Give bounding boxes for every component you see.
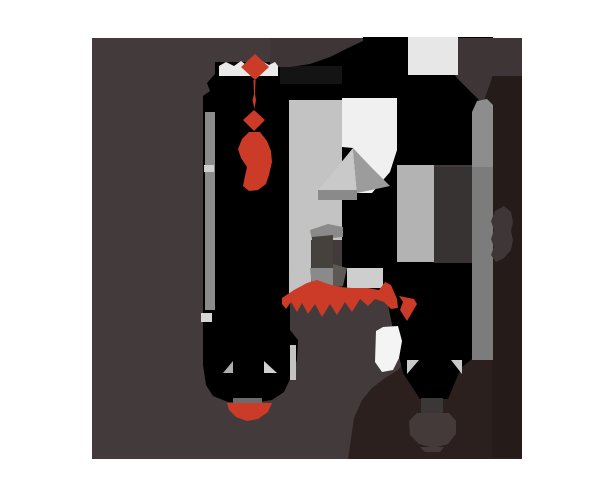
charcoal-rect	[421, 398, 443, 415]
medium-gray-column	[397, 165, 434, 262]
artwork-canvas	[0, 0, 614, 498]
artwork	[0, 0, 614, 498]
dark-gray-column	[434, 167, 472, 263]
strip-under-triangle	[318, 190, 357, 200]
light-quad	[347, 268, 383, 288]
light-square-small	[201, 313, 212, 322]
gray-strip-light-piece	[204, 165, 214, 172]
gray-column-lower	[472, 167, 493, 360]
maroon-right-column	[492, 76, 522, 457]
black-left-column	[203, 62, 298, 403]
lightgray-strip-piece	[290, 345, 296, 380]
gray-strip-vertical	[205, 112, 215, 310]
light-rect-top	[408, 37, 458, 75]
knuckle-rect	[312, 235, 333, 268]
near-black-rect	[280, 66, 342, 84]
gray-column-upper	[472, 99, 493, 167]
